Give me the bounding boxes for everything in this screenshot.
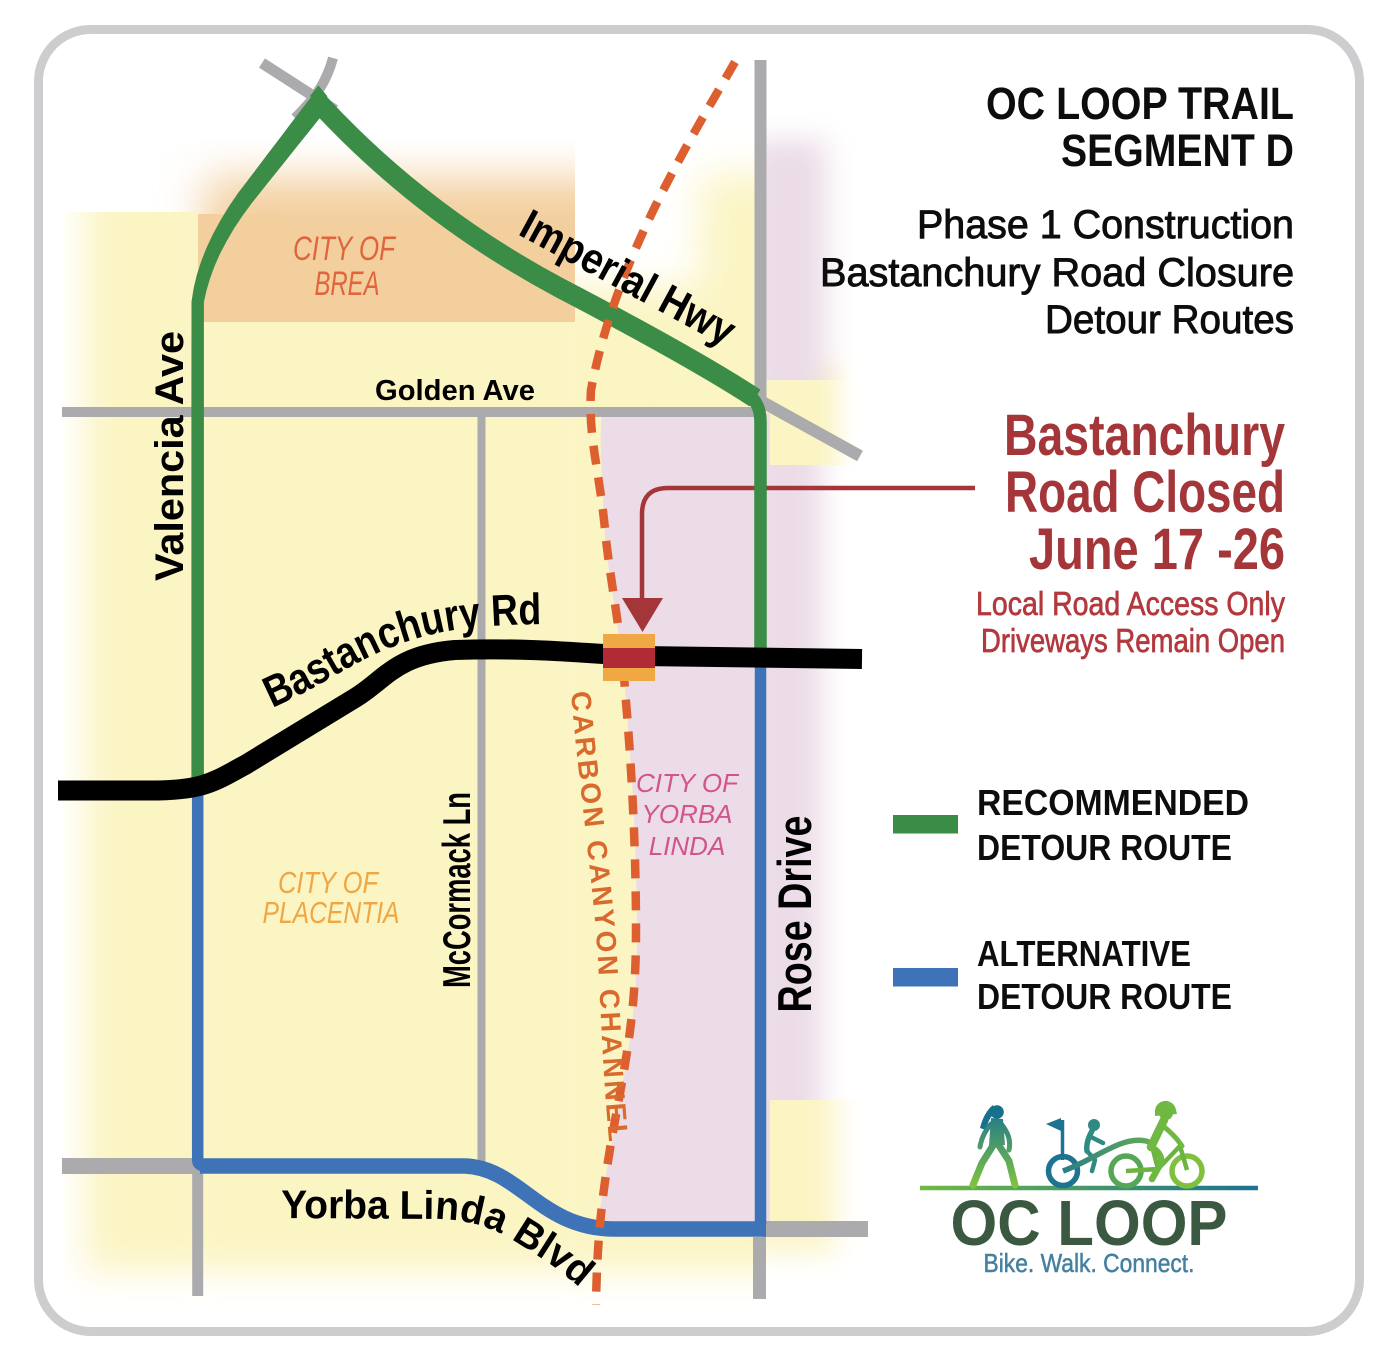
svg-text:ALTERNATIVE: ALTERNATIVE (977, 933, 1191, 974)
svg-text:June 17 -26: June 17 -26 (1029, 517, 1285, 582)
svg-text:Bike. Walk. Connect.: Bike. Walk. Connect. (984, 1248, 1195, 1278)
svg-text:YORBA: YORBA (641, 799, 732, 829)
svg-text:Phase 1 Construction: Phase 1 Construction (917, 203, 1294, 247)
svg-text:CITY OF: CITY OF (636, 768, 740, 798)
svg-text:Road Closed: Road Closed (1005, 460, 1285, 525)
svg-text:RECOMMENDED: RECOMMENDED (977, 782, 1249, 823)
svg-text:DETOUR ROUTE: DETOUR ROUTE (977, 976, 1232, 1017)
svg-text:Golden Ave: Golden Ave (375, 375, 535, 407)
svg-text:Bastanchury Road Closure: Bastanchury Road Closure (820, 251, 1294, 295)
svg-text:Rose Drive: Rose Drive (768, 816, 821, 1013)
svg-text:Valencia Ave: Valencia Ave (148, 331, 192, 581)
svg-text:SEGMENT D: SEGMENT D (1061, 125, 1294, 176)
svg-text:Driveways Remain Open: Driveways Remain Open (981, 622, 1285, 659)
svg-text:Bastanchury: Bastanchury (1004, 403, 1285, 468)
svg-text:Detour Routes: Detour Routes (1045, 298, 1294, 342)
svg-text:LINDA: LINDA (649, 831, 726, 861)
svg-text:BREA: BREA (315, 265, 380, 303)
svg-text:CITY OF: CITY OF (293, 230, 397, 268)
svg-text:DETOUR ROUTE: DETOUR ROUTE (977, 827, 1232, 868)
svg-text:OC LOOP TRAIL: OC LOOP TRAIL (986, 78, 1294, 129)
svg-text:Local Road Access Only: Local Road Access Only (976, 585, 1285, 622)
svg-text:PLACENTIA: PLACENTIA (263, 895, 400, 930)
svg-text:McCormack Ln: McCormack Ln (436, 792, 479, 988)
